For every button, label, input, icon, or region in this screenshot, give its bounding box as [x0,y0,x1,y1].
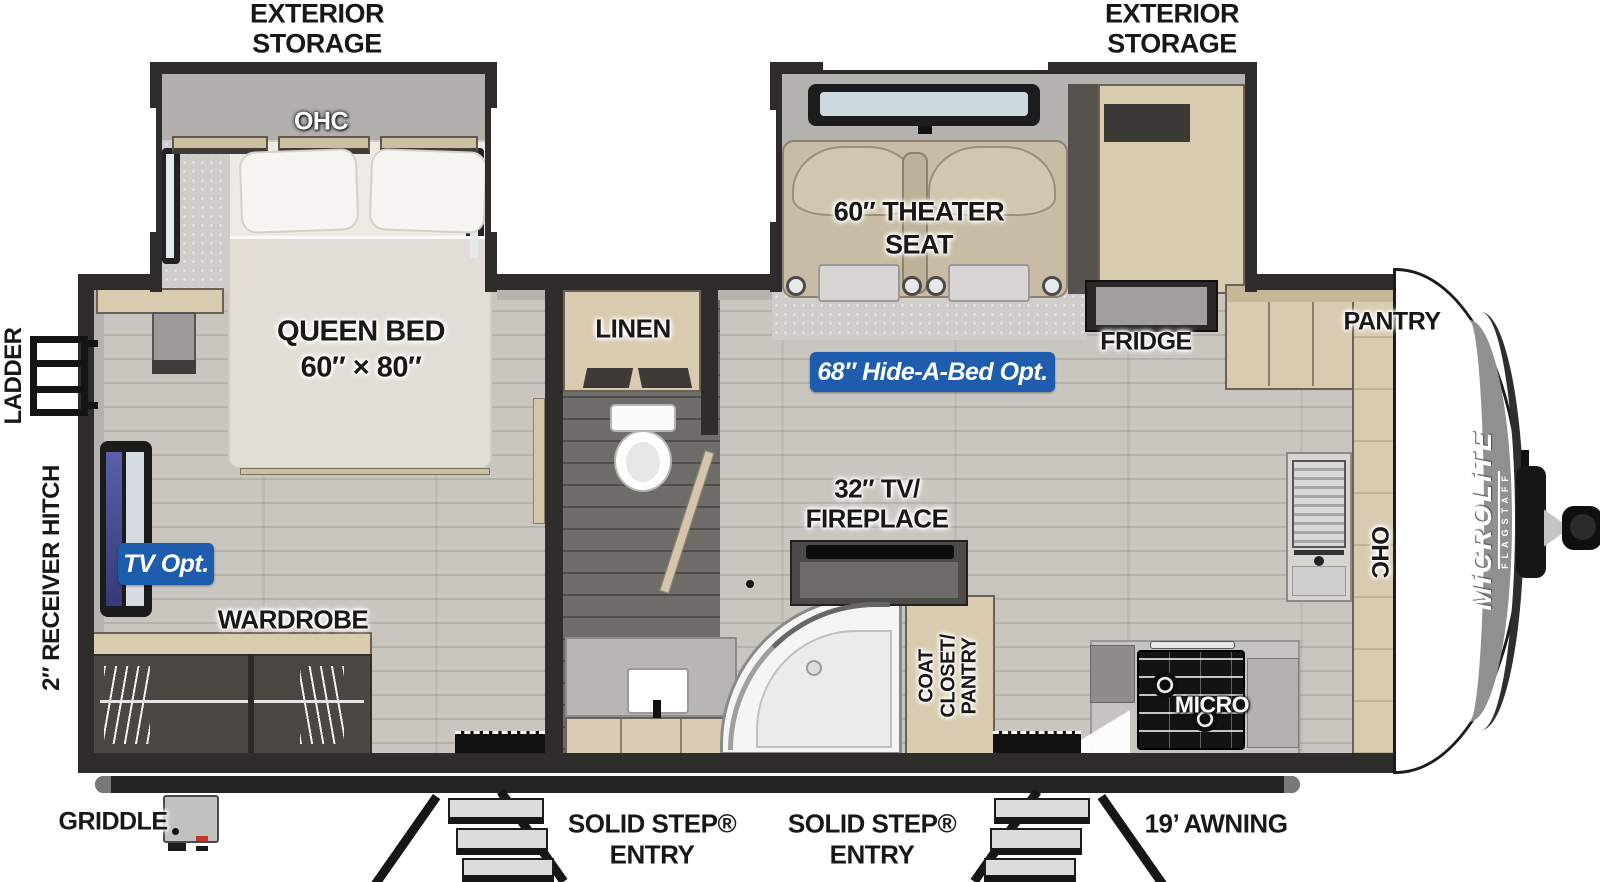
linen-shelf-slot-2 [638,368,692,388]
ladder-mount-2 [86,402,98,409]
top-wall-front-segment [1255,274,1398,290]
pantry-door-line-2 [1312,302,1314,386]
ladder-rung-2 [37,386,81,393]
steps-tread-icon [462,858,554,882]
nightstand-front [152,360,196,374]
steps-tread-icon [448,798,544,824]
tv-fireplace-label-line1: 32″ TV/ [834,474,920,505]
vanity-faucet [653,700,661,718]
brand-logo-text: MiCROLiTE [1468,430,1496,611]
theater-slide-storage-door-top [823,62,1048,70]
steps-tread-icon [994,798,1090,824]
theater-seat-label-line1: 60″ THEATER [834,197,1004,228]
vanity-drawer-divider-1 [620,719,622,755]
pantry-label: PANTRY [1344,308,1441,337]
hitch-jack-knob-inner [1570,514,1596,540]
coat-closet-label-line3: PANTRY [959,638,981,715]
wardrobe-hangers-right [300,666,344,744]
floorplan-canvas: 68″ Hide-A-Bed Opt. TV Opt. EXTERIOR STO… [0,0,1600,882]
kitchen-sink [1292,460,1346,548]
entry-a-label-line2: ENTRY [610,840,695,871]
bath-door-handle [746,580,754,588]
bedroom-slide-walls [150,62,497,292]
hide-a-bed-badge-text: 68″ Hide-A-Bed Opt. [817,358,1047,387]
wardrobe-rod [100,700,364,703]
brand-logo: MiCROLiTE FLAGSTAFF [1466,370,1512,670]
bath-wall-west [545,288,563,755]
steps-tread-icon [990,828,1082,855]
theater-slide-walls [770,62,1257,292]
kitchen-faucet-bar [1294,550,1344,555]
ladder-icon [30,336,88,416]
fridge-label: FRIDGE [1100,328,1191,357]
fridge-door-panel [1096,287,1207,325]
coat-closet-label-line1: COAT [916,649,938,702]
griddle-red-mark [196,836,208,841]
kitchen-sink-tray [1292,566,1346,596]
ladder-label: LADDER [0,328,28,425]
steps-tread-icon [456,828,548,855]
entry-a-label-line1: SOLID STEP® [568,809,736,840]
exterior-storage-right-label-line2: STORAGE [1107,29,1237,60]
vanity-drawers [565,717,737,757]
microwave-box [1247,658,1299,748]
kitchen-counter-front-run [1352,284,1398,757]
entry-steps-icon-b [958,790,1113,882]
bedroom-slide-storage-door-right [491,108,497,232]
entry-b-label-line1: SOLID STEP® [788,809,956,840]
vanity-drawer-divider-2 [680,719,682,755]
wardrobe-countertop [92,632,372,656]
tv-fireplace-label-line2: FIREPLACE [806,504,949,535]
griddle-icon [163,795,219,843]
awning-roller-cap-left [95,776,111,793]
theater-seat-label-line2: SEAT [885,230,953,261]
bedroom-ohc-label: OHC [294,108,348,137]
steps-strut-icon [370,794,440,882]
griddle-label: GRIDDLE [59,808,168,837]
steps-tread-icon [984,858,1076,882]
bedroom-pocket-door [533,398,545,524]
tv-fireplace-panel [800,562,958,598]
pantry-door-line-1 [1268,302,1270,386]
awning-roller-cap-right [1284,776,1300,793]
entry-steps-icon-a [425,790,570,882]
griddle-foot-2 [196,846,208,851]
linen-shelf-slot-1 [583,368,633,388]
awning-roller [95,776,1300,793]
queen-bed-foot-rail [240,468,490,475]
linen-label: LINEN [595,314,671,345]
range-side-cabinet [1090,645,1135,703]
bottom-wall [80,753,1398,773]
shower-drain [806,660,822,676]
bath-wall-east [701,288,718,435]
brand-logo-subtext: FLAGSTAFF [1498,471,1510,569]
top-wall-middle-segment [497,274,772,290]
bedroom-slide-storage-door-left [150,108,156,232]
queen-bed-label-line1: QUEEN BED [277,316,445,349]
cooktop-handle [1150,641,1235,649]
queen-bed-label-line2: 60″ × 80″ [301,352,422,385]
theater-slide-storage-door-left [770,110,776,222]
kitchen-faucet [1314,556,1324,566]
coat-closet-label-line2: CLOSET/ [937,634,959,717]
wardrobe-hangers-left [104,666,150,744]
ladder-mount-1 [86,340,98,347]
awning-label: 19’ AWNING [1145,809,1288,840]
coat-closet-label: COAT CLOSET/ PANTRY [917,634,982,717]
kitchen-ohc-label: OHC [1365,526,1393,578]
wardrobe-label: WARDROBE [218,605,369,636]
ladder-rung-1 [37,360,81,367]
exterior-storage-left-label-line1: EXTERIOR [250,0,384,30]
exterior-storage-right-label-line1: EXTERIOR [1105,0,1239,30]
hide-a-bed-badge: 68″ Hide-A-Bed Opt. [810,352,1055,392]
griddle-foot-1 [168,843,186,851]
toilet-bowl-inner [626,442,660,482]
receiver-hitch-label: 2″ RECEIVER HITCH [38,465,66,691]
griddle-knob [172,828,179,835]
hitch-coupler [1516,466,1546,578]
wardrobe-divider [248,654,254,758]
tv-fireplace-screen [806,545,954,559]
exterior-storage-left-label-line2: STORAGE [252,29,382,60]
entry-b-label-line2: ENTRY [830,840,915,871]
toilet-tank [610,404,676,432]
tv-opt-badge: TV Opt. [118,543,214,585]
micro-label: MICRO [1175,692,1249,719]
tv-opt-badge-text: TV Opt. [123,550,208,579]
